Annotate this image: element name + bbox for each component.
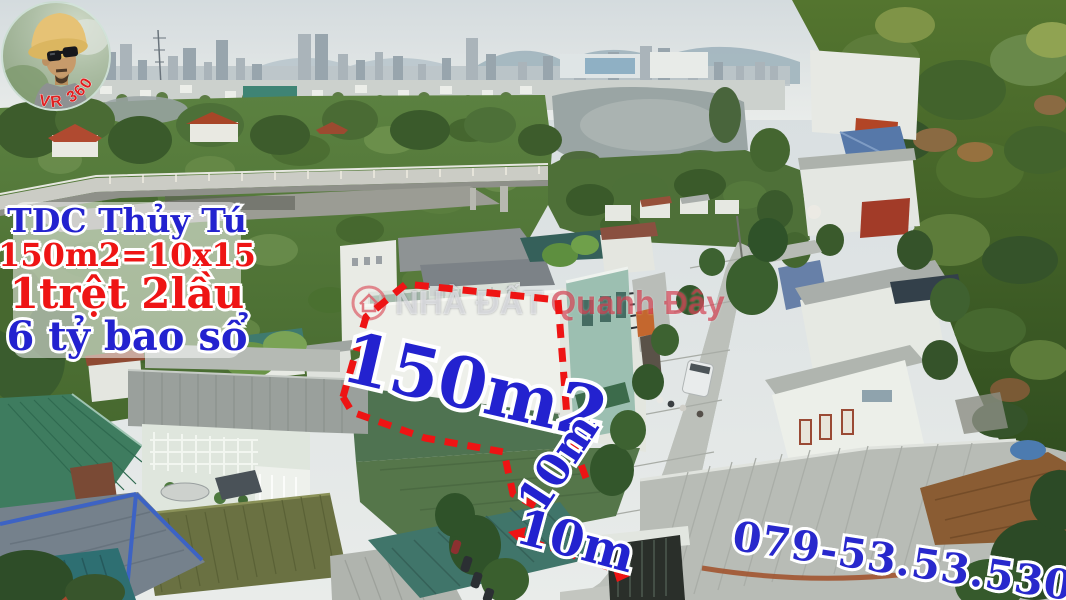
listing-photo: NHÀ ĐẤT Quanh Đây — [0, 0, 1066, 600]
